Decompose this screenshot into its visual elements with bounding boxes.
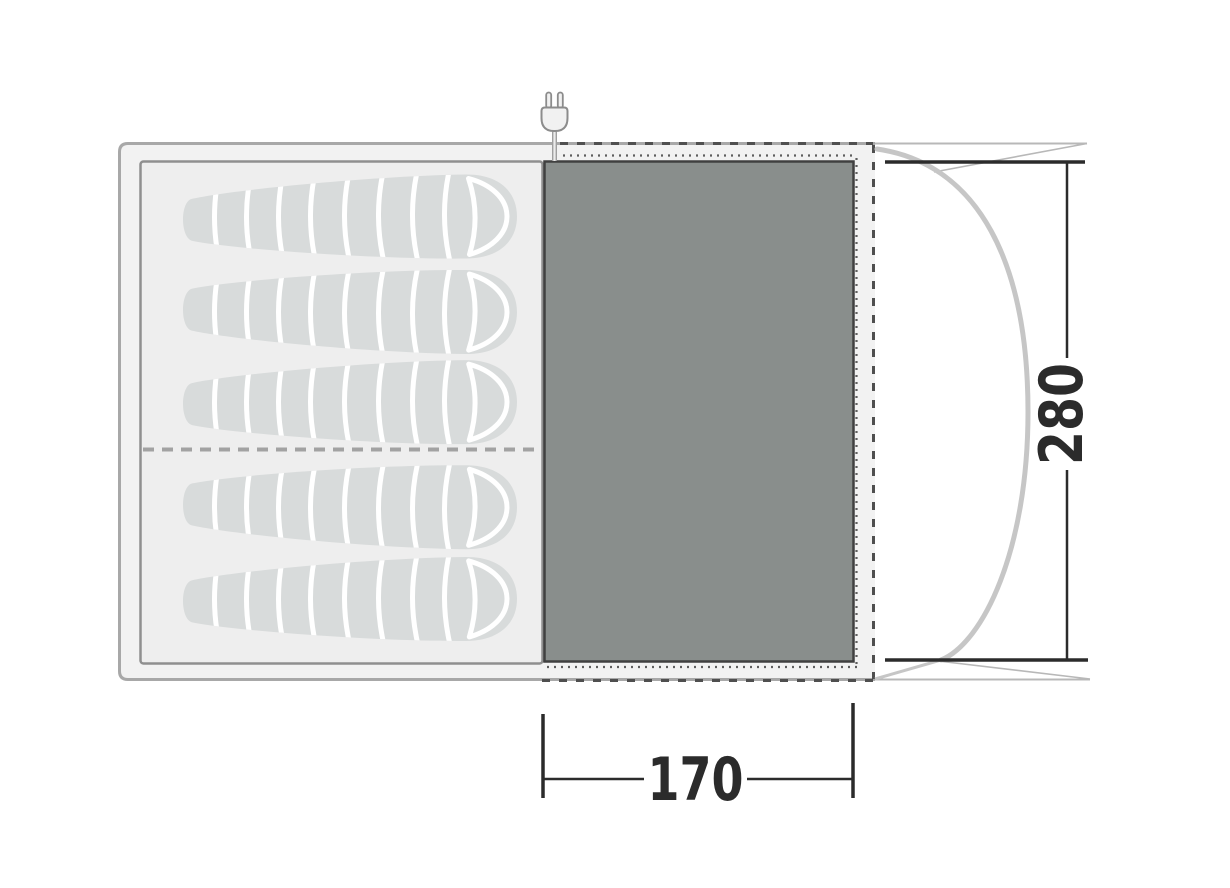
living-width-dimension-label: 170 xyxy=(648,745,744,815)
plug-body xyxy=(542,108,568,132)
tent-floorplan-page: 280 170 xyxy=(0,0,1230,888)
plug-prong-left xyxy=(546,93,551,109)
porch-pole-curve xyxy=(877,149,1028,660)
living-area xyxy=(545,162,854,662)
porch-pole-tail xyxy=(875,660,941,679)
plug-prong-right xyxy=(558,93,563,109)
depth-dimension: 280 xyxy=(885,162,1097,660)
living-width-dimension: 170 xyxy=(543,703,853,815)
tent-floorplan-diagram: 280 170 xyxy=(0,0,1230,888)
depth-dimension-label: 280 xyxy=(1027,363,1097,465)
